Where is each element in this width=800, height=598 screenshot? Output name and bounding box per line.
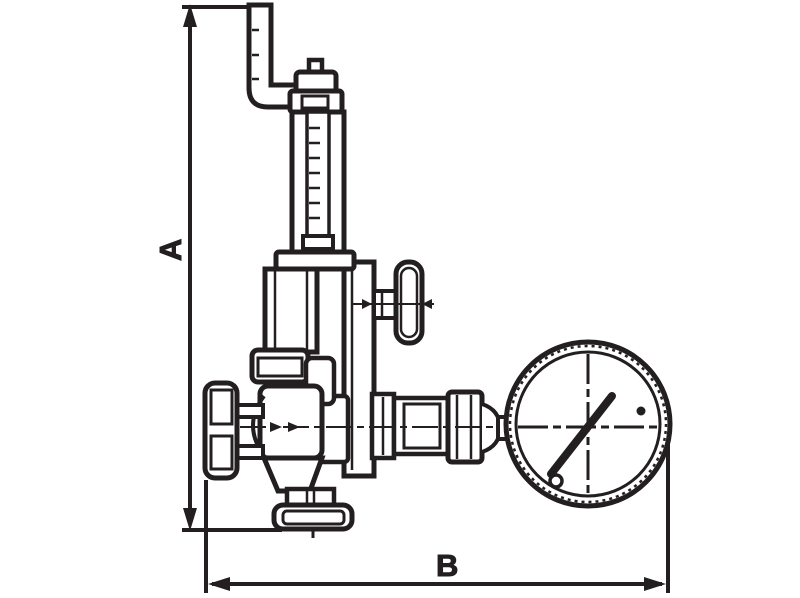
knob-stem-top	[237, 405, 263, 417]
dim-a-arrow-down	[183, 508, 197, 531]
threaded-rod	[307, 112, 329, 254]
drawing-canvas: A B	[0, 0, 800, 598]
bottom-cone	[264, 458, 322, 491]
dim-a-label: A	[153, 239, 188, 261]
adjusting-screw-cap	[290, 60, 342, 112]
pressure-gauge	[506, 342, 670, 506]
body-main-block	[260, 386, 322, 458]
bonnet	[265, 252, 354, 352]
cap-window	[302, 96, 328, 108]
knob-upper-panel	[211, 390, 232, 424]
top-flange-inner	[258, 358, 302, 376]
dim-b-arrow-left	[208, 577, 230, 591]
valve-body	[252, 350, 348, 491]
valve-technical-drawing: A B	[0, 0, 800, 598]
tube-flange	[276, 252, 354, 269]
needle-pivot-ring	[550, 475, 562, 487]
handle-inner	[401, 268, 417, 337]
dial-screw-dot	[637, 407, 646, 416]
knob-lower-panel	[211, 436, 232, 469]
knob-stem-bottom	[237, 446, 263, 458]
spring-housing-tube	[292, 112, 344, 254]
drain-cap-inner	[283, 511, 344, 524]
lock-nut	[303, 236, 333, 249]
dim-b-arrow-right	[644, 577, 666, 591]
bonnet-body	[265, 269, 317, 352]
dim-b-label: B	[436, 548, 458, 583]
bottom-drain-connection	[274, 489, 352, 538]
